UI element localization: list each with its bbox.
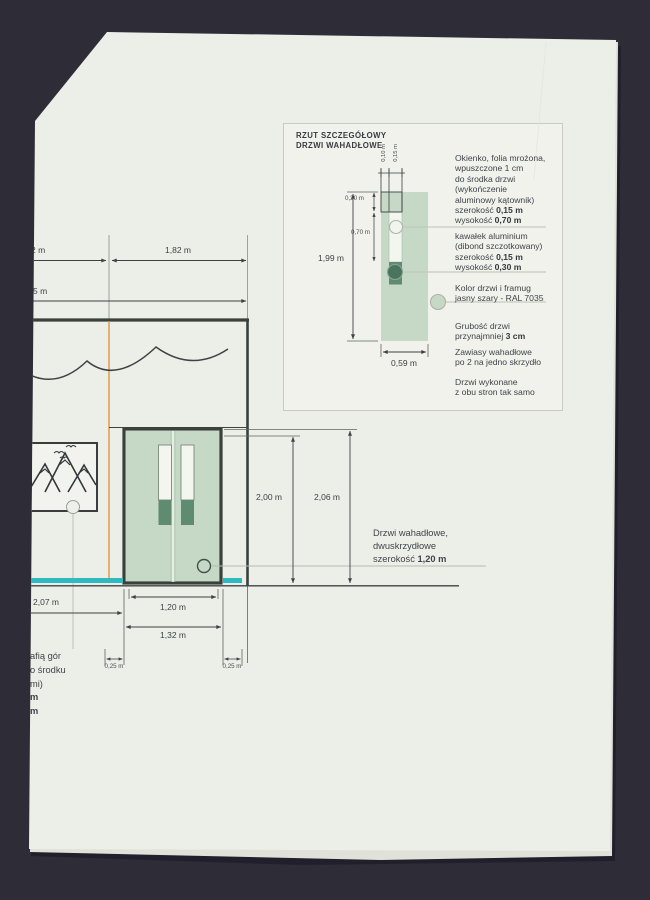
sign-reference-marker: [67, 501, 80, 514]
dim-label-left-span: 2,07 m: [33, 598, 59, 607]
dim-label-edge-offset: 0,10 m: [382, 138, 388, 168]
sign-caption-line3: mi): [30, 678, 66, 692]
sign-caption-line5: m: [30, 705, 66, 719]
dim-label-detail-height: 1,99 m: [318, 254, 344, 263]
floor-teal-right: [223, 578, 242, 583]
detail-title: RZUT SZCZEGÓŁOWY DRZWI WAHADŁOWE: [296, 131, 386, 152]
dim-label-offset-right: 0,25 m: [218, 664, 246, 670]
detail-title-line1: RZUT SZCZEGÓŁOWY: [296, 131, 386, 141]
dim-label-frame-width: 1,32 m: [148, 631, 198, 640]
dim-label-door-height: 2,00 m: [256, 493, 282, 502]
annotation-hinges: Zawiasy wahadłowe po 2 na jedno skrzydło: [455, 347, 541, 368]
dim-label-window-width: 0,15 m: [394, 138, 400, 168]
annotation-both-sides: Drzwi wykonane z obu stron tak samo: [455, 377, 535, 398]
door-label: Drzwi wahadłowe, dwuskrzydłowe szerokość…: [373, 527, 448, 566]
detail-door-leaf: [381, 192, 428, 341]
right-door-window: [181, 445, 194, 500]
door-label-line3: szerokość 1,20 m: [373, 553, 448, 566]
drawing-paper: RZUT SZCZEGÓŁOWY DRZWI WAHADŁOWE 0,10 m …: [0, 0, 650, 900]
dim-label-top-left-partial: 2 m: [31, 246, 45, 255]
dim-label-total-partial: 5 m: [33, 287, 47, 296]
marker-door-color: [431, 295, 446, 310]
door-label-line2: dwuskrzydłowe: [373, 540, 448, 553]
detail-window: [389, 212, 402, 262]
mountain-sign: [28, 443, 97, 649]
sign-caption-line4: m: [30, 691, 66, 705]
left-aluminium-panel: [159, 500, 172, 525]
right-aluminium-panel: [181, 500, 194, 525]
annotation-thickness: Grubość drzwi przynajmniej 3 cm: [455, 321, 525, 342]
sign-caption-line1: afią gór: [30, 650, 66, 664]
dim-label-clear-width: 1,20 m: [148, 603, 198, 612]
dim-label-window-height: 0,70 m: [351, 230, 370, 236]
door-reference-marker: [198, 560, 211, 573]
sign-frame: [28, 443, 97, 511]
sign-caption: afią gór o środku mi) m m: [30, 650, 66, 719]
left-door-window: [159, 445, 172, 500]
floor-teal-left: [30, 578, 123, 583]
marker-window: [390, 221, 403, 234]
dim-label-detail-width: 0,59 m: [382, 359, 426, 368]
photographed-drawing-sheet: { "colors": { "background": "#2e2c37", "…: [0, 0, 650, 900]
dim-label-top-offset: 0,20 m: [345, 196, 364, 202]
annotation-window: Okienko, folia mrożona, wpuszczone 1 cm …: [455, 153, 545, 226]
dim-label-frame-height: 2,06 m: [314, 493, 340, 502]
dim-label-offset-left: 0,25 m: [100, 664, 128, 670]
door-label-line1: Drzwi wahadłowe,: [373, 527, 448, 540]
annotation-color: Kolor drzwi i framug jasny szary - RAL 7…: [455, 283, 544, 304]
detail-title-line2: DRZWI WAHADŁOWE: [296, 141, 386, 151]
marker-aluminium: [388, 265, 403, 280]
sign-caption-line2: o środku: [30, 664, 66, 678]
annotation-aluminium: kawałek aluminium (dibond szczotkowany) …: [455, 231, 542, 273]
dim-label-182: 1,82 m: [150, 246, 206, 255]
wall-graphic-wave: [28, 347, 228, 379]
